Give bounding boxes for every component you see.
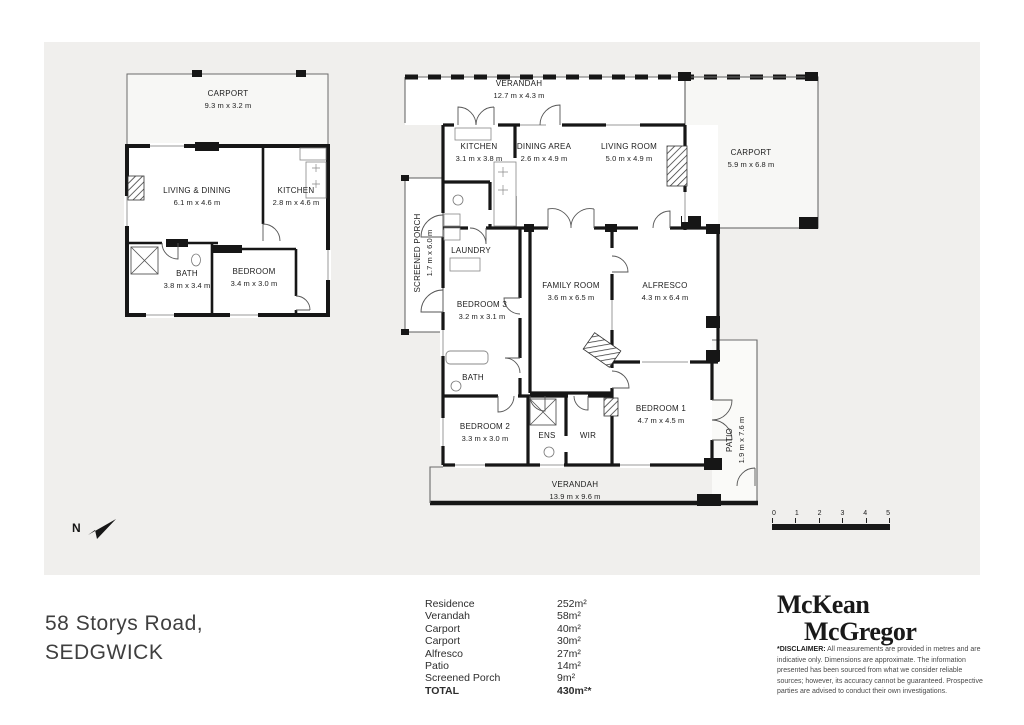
room-label-laundry: LAUNDRY: [451, 245, 491, 257]
logo-line1: McKean: [777, 592, 916, 618]
area-table: Residence 252m² Verandah 58m² Carport 40…: [425, 598, 591, 697]
room-label-living-room: LIVING ROOM 5.0 m x 4.9 m: [601, 141, 657, 165]
scale-numbers: 0 1 2 3 4 5: [772, 510, 890, 517]
table-row: Carport 30m²: [425, 635, 591, 647]
table-row: Carport 40m²: [425, 623, 591, 635]
scale-bar: 0 1 2 3 4 5: [772, 510, 890, 530]
room-label-carport-flat: CARPORT 9.3 m x 3.2 m: [205, 88, 252, 112]
disclaimer-text: *DISCLAIMER: All measurements are provid…: [777, 645, 983, 698]
floor-plan-page: CARPORT 9.3 m x 3.2 m LIVING & DINING 6.…: [0, 0, 1024, 725]
room-label-kitchen-flat: KITCHEN 2.8 m x 4.6 m: [273, 185, 320, 209]
property-address: 58 Storys Road, SEDGWICK: [45, 610, 203, 668]
disclaimer-body: All measurements are provided in metres …: [777, 646, 983, 695]
room-label-bedroom-flat: BEDROOM 3.4 m x 3.0 m: [231, 266, 278, 290]
table-row: Patio 14m²: [425, 660, 591, 672]
room-label-bath-main: BATH: [462, 372, 484, 384]
room-label-bath-flat: BATH 3.8 m x 3.4 m: [164, 268, 211, 292]
table-row: Alfresco 27m²: [425, 648, 591, 660]
room-label-living-dining-flat: LIVING & DINING 6.1 m x 4.6 m: [163, 185, 231, 209]
table-row: Screened Porch 9m²: [425, 672, 591, 684]
room-label-bedroom2: BEDROOM 2 3.3 m x 3.0 m: [460, 421, 510, 445]
scale-bar-rule: [772, 524, 890, 530]
scale-ticks: [772, 518, 890, 523]
room-label-dining-area: DINING AREA 2.6 m x 4.9 m: [517, 141, 571, 165]
room-label-verandah-bottom: VERANDAH 13.9 m x 9.6 m: [549, 479, 600, 503]
room-label-wir: WIR: [580, 430, 596, 442]
north-label: N: [72, 521, 81, 535]
room-label-family-room: FAMILY ROOM 3.6 m x 6.5 m: [542, 280, 600, 304]
room-label-patio: PATIO 1.9 m x 7.6 m: [724, 417, 748, 464]
room-label-alfresco: ALFRESCO 4.3 m x 6.4 m: [642, 280, 689, 304]
room-label-verandah-top: VERANDAH 12.7 m x 4.3 m: [493, 78, 544, 102]
room-label-bedroom1: BEDROOM 1 4.7 m x 4.5 m: [636, 403, 686, 427]
room-label-kitchen-main: KITCHEN 3.1 m x 3.8 m: [456, 141, 503, 165]
agency-logo: McKean McGregor: [777, 592, 916, 645]
table-row: Residence 252m²: [425, 598, 591, 610]
room-label-carport-main: CARPORT 5.9 m x 6.8 m: [728, 147, 775, 171]
room-label-bedroom3: BEDROOM 3 3.2 m x 3.1 m: [457, 299, 507, 323]
north-indicator: N: [64, 512, 120, 542]
room-label-screened-porch: SCREENED PORCH 1.7 m x 6.0 m: [412, 213, 436, 292]
disclaimer-title: *DISCLAIMER:: [777, 646, 826, 653]
table-row: Verandah 58m²: [425, 610, 591, 622]
address-line2: SEDGWICK: [45, 639, 203, 668]
table-row-total: TOTAL 430m²*: [425, 685, 591, 697]
address-line1: 58 Storys Road,: [45, 610, 203, 639]
room-label-ens: ENS: [538, 430, 555, 442]
logo-line2: McGregor: [804, 619, 916, 645]
